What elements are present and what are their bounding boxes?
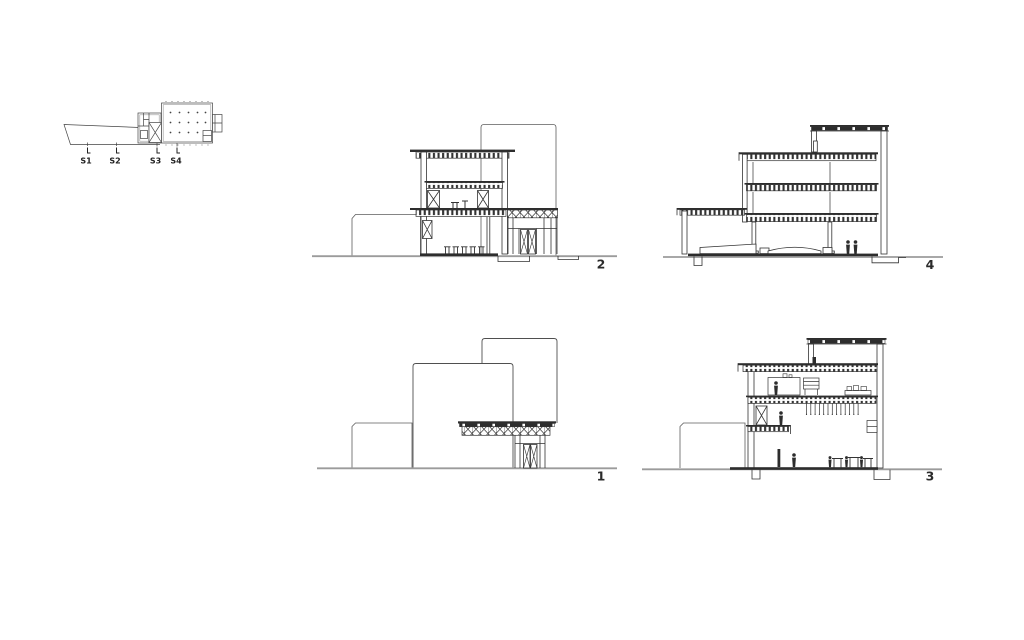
key-plan-drawing: S1 S2 S3 S4 [64,101,222,165]
background-low-volume [680,423,745,468]
cut-label-s2: S2 [109,157,120,166]
hanging-rods [807,403,859,414]
section-4-number-label: 4 [926,257,935,272]
background-tall-volume [481,125,556,257]
drawing-sheet: S1 S2 S3 S4 [0,0,1024,640]
section-3-drawing: 3 [642,338,942,484]
section-cut-markers [88,148,181,154]
person-figure [854,240,858,254]
section-4-drawing: 4 [663,125,943,272]
cut-label-s3: S3 [150,157,161,166]
person-figure [846,240,850,254]
person-figure [792,453,796,467]
person-figure [779,411,783,425]
background-mid-volume [413,364,513,469]
person-figure [860,456,863,467]
background-low-volume [352,423,412,468]
section-1-number-label: 1 [597,469,606,484]
stools [444,247,485,254]
sections-sheet-drawing: S1 S2 S3 S4 [0,0,1024,640]
exhibit-table [700,244,756,254]
section-2-drawing: 2 [312,125,617,272]
section-2-number-label: 2 [597,257,606,272]
background-low-volume [352,215,421,257]
section-1-drawing: 1 [317,339,617,484]
cafe-tables [832,458,873,468]
cut-label-s1: S1 [80,157,92,166]
person-figure [845,456,848,467]
exhibit-mound [768,247,821,253]
cut-label-s4: S4 [170,157,182,166]
section-3-number-label: 3 [926,469,935,484]
person-figure [828,456,831,467]
person-figure [774,381,778,395]
